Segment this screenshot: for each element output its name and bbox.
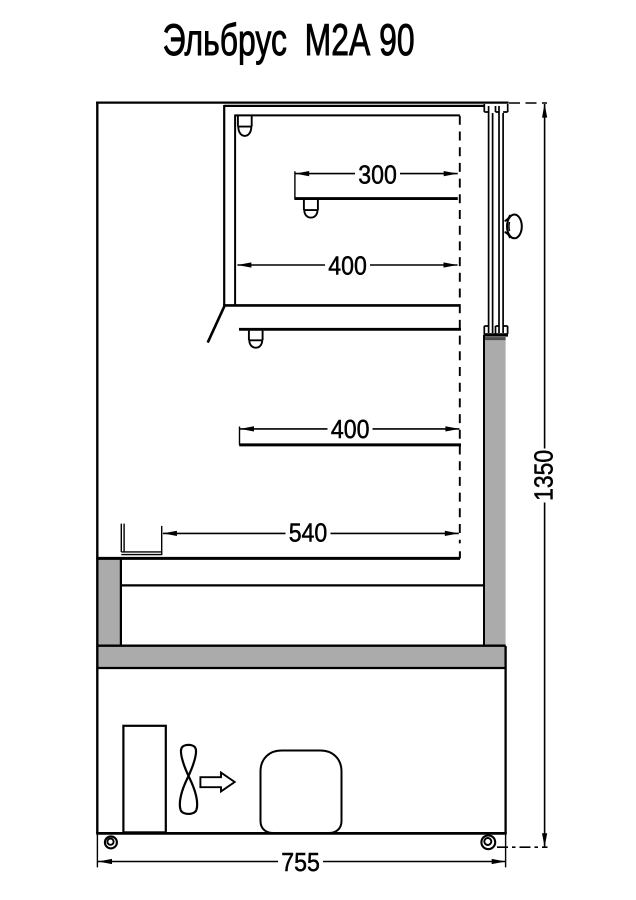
svg-text:540: 540 xyxy=(289,517,328,547)
svg-text:400: 400 xyxy=(331,414,370,444)
svg-text:1350: 1350 xyxy=(529,450,559,501)
svg-text:400: 400 xyxy=(328,250,367,280)
svg-text:755: 755 xyxy=(281,847,320,877)
svg-text:Эльбрус М2А 90: Эльбрус М2А 90 xyxy=(163,16,415,65)
svg-text:300: 300 xyxy=(358,159,397,189)
